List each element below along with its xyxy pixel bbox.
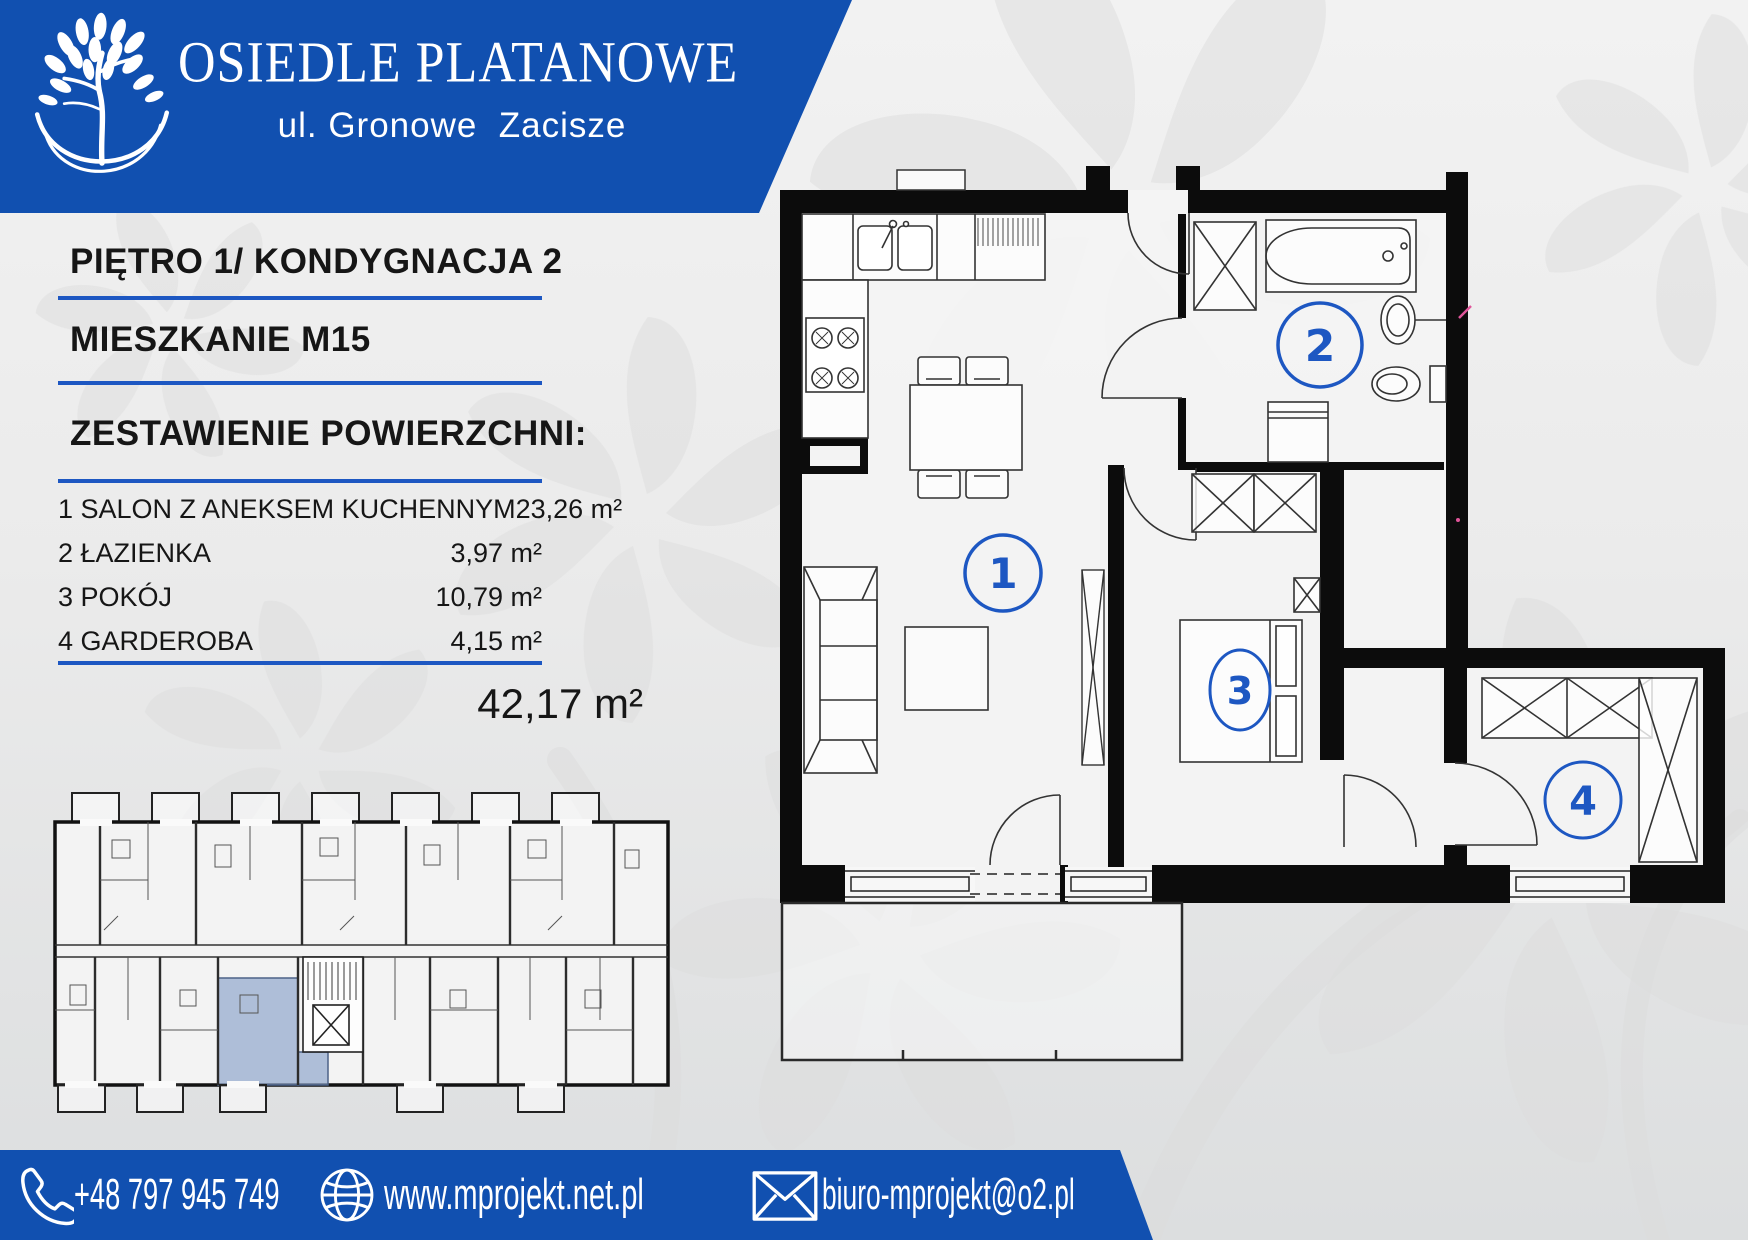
washing-machine (1268, 402, 1328, 462)
room-name: 2 ŁAZIENKA (58, 538, 211, 569)
phone-number: +48 797 945 749 (74, 1150, 280, 1240)
room-3-label: 3 (1227, 669, 1253, 713)
room-area: 4,15 m² (450, 626, 542, 657)
area-table-row: 2 ŁAZIENKA 3,97 m² (58, 538, 542, 569)
tree-logo-icon (12, 2, 192, 208)
development-name: OSIEDLE PLATANOWE (178, 30, 726, 96)
area-table-row: 4 GARDEROBA 4,15 m² (58, 626, 542, 657)
toilet (1372, 367, 1420, 401)
room-name: 1 SALON Z ANEKSEM KUCHENNYM (58, 494, 516, 525)
room-area: 23,26 m² (516, 494, 623, 525)
floor-label: PIĘTRO 1/ KONDYGNACJA 2 (70, 242, 563, 282)
stair-core (303, 957, 363, 1052)
email-address: biuro-mprojekt@o2.pl (822, 1150, 1075, 1240)
balconies-bottom (58, 1085, 564, 1112)
kitchen-sink (858, 226, 892, 270)
divider-line (58, 479, 542, 483)
area-summary-heading: ZESTAWIENIE POWIERZCHNI: (70, 414, 587, 454)
divider-line (58, 381, 542, 385)
divider-line (58, 661, 542, 665)
balconies-top (72, 793, 599, 822)
divider-line (58, 296, 542, 300)
total-area-value: 42,17 m² (58, 680, 643, 728)
room-1-label: 1 (988, 549, 1017, 598)
apartment-label: MIESZKANIE M15 (70, 320, 371, 360)
balcony-floor (782, 903, 1182, 1060)
phone-icon (16, 1162, 74, 1228)
area-table-row: 3 POKÓJ 10,79 m² (58, 582, 542, 613)
coffee-table (905, 627, 988, 710)
room-area: 10,79 m² (435, 582, 542, 613)
envelope-icon (752, 1170, 818, 1222)
room-name: 3 POKÓJ (58, 582, 172, 613)
upper-window-recess (897, 170, 965, 190)
room-4-label: 4 (1569, 779, 1597, 825)
apartment-floor-plan: 1 2 3 4 (700, 150, 1748, 1080)
building-overview-plan (40, 735, 690, 1125)
tv-unit (1082, 570, 1104, 765)
street-address: ul. Gronowe Zacisze (178, 106, 726, 146)
globe-icon (318, 1166, 376, 1224)
room-name: 4 GARDEROBA (58, 626, 253, 657)
sofa (804, 567, 877, 773)
dining-table (910, 357, 1022, 498)
website-url: www.mprojekt.net.pl (384, 1150, 644, 1240)
room-2-label: 2 (1305, 321, 1336, 372)
area-table-row: 1 SALON Z ANEKSEM KUCHENNYM 23,26 m² (58, 494, 542, 525)
flyer-page: OSIEDLE PLATANOWE ul. Gronowe Zacisze PI… (0, 0, 1748, 1240)
room-area: 3,97 m² (450, 538, 542, 569)
